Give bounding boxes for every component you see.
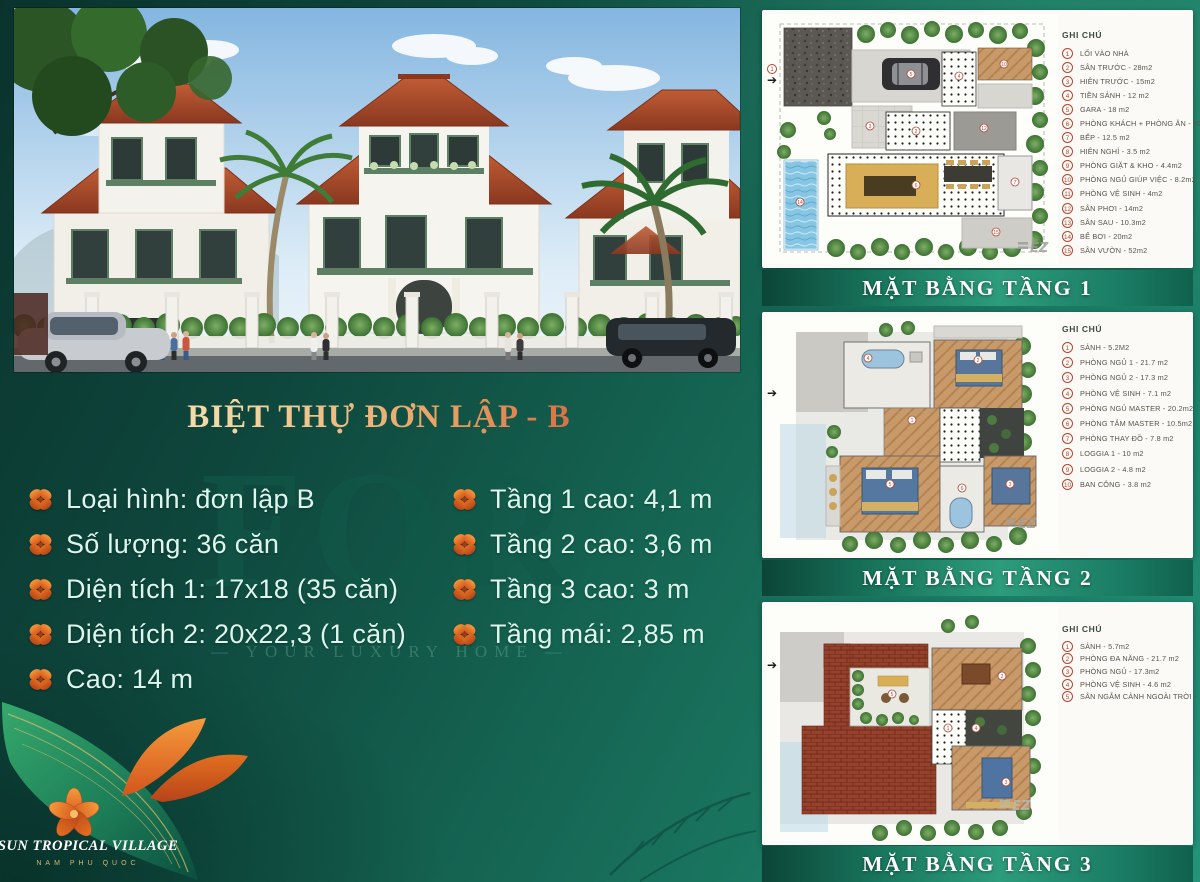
svg-text:EZ: EZ — [1030, 241, 1049, 256]
spec-item: Cao: 14 m — [28, 657, 406, 702]
flower-bullet-icon — [452, 622, 477, 647]
svg-text:5: 5 — [891, 692, 894, 698]
flower-bullet-icon — [28, 622, 53, 647]
spec-item: Diện tích 1: 17x18 (35 căn) — [28, 567, 406, 612]
legend-item: 3 PHÒNG NGỦ 2 - 17.3 m2 — [1062, 370, 1187, 385]
flower-bullet-icon — [28, 487, 53, 512]
legend-label: GARA - 18 m2 — [1080, 105, 1129, 114]
legend-number-badge: 10 — [1062, 174, 1073, 185]
svg-text:3: 3 — [1005, 780, 1008, 786]
poster-page: FOR — YOUR LUXURY HOME — BIỆT THỰ ĐƠN LẬ… — [0, 0, 1200, 882]
svg-text:5: 5 — [889, 482, 892, 488]
svg-text:6: 6 — [961, 486, 964, 492]
legend-label: PHÒNG VỆ SINH - 4m2 — [1080, 189, 1162, 198]
legend-item: 8 HIÊN NGHỈ - 3.5 m2 — [1062, 145, 1187, 159]
spec-item: Tầng 1 cao: 4,1 m — [452, 477, 713, 522]
spec-label: Diện tích 2: 20x22,3 (1 căn) — [66, 619, 406, 650]
legend-label: BỂ BƠI - 20m2 — [1080, 232, 1132, 241]
floor-plan-card-3: 1 2 3 4 5 EZ ➔ GHI CHÚ 1 SẢNH - 5.7m2 — [762, 602, 1193, 845]
legend-number-badge: 9 — [1062, 160, 1073, 171]
spec-list-left: Loại hình: đơn lập B Số lượng: 36 căn Di… — [28, 477, 406, 702]
spec-label: Cao: 14 m — [66, 664, 193, 695]
flower-bullet-icon — [452, 532, 477, 557]
legend-number-badge: 5 — [1062, 691, 1073, 702]
legend-label: TIỀN SẢNH - 12 m2 — [1080, 91, 1149, 100]
caption-tang-3: MẶT BẰNG TẦNG 3 — [762, 846, 1193, 882]
legend-number-badge: 2 — [1062, 653, 1073, 664]
palm-frond-decoration — [600, 745, 758, 882]
legend-item: 2 SÂN TRƯỚC - 28m2 — [1062, 60, 1187, 74]
villa-photo — [14, 8, 740, 372]
caption-tang-2: MẶT BẰNG TẦNG 2 — [762, 560, 1193, 596]
legend-number-badge: 11 — [1062, 188, 1073, 199]
legend-label: LOGGIA 1 - 10 m2 — [1080, 449, 1144, 458]
legend-label: HIÊN TRƯỚC - 15m2 — [1080, 77, 1155, 86]
svg-text:4: 4 — [975, 726, 978, 732]
legend-number-badge: 2 — [1062, 357, 1073, 368]
north-arrow-icon: ➔ — [767, 75, 777, 85]
legend-number-badge: 5 — [1062, 104, 1073, 115]
legend-label: PHÒNG NGỦ 2 - 17.3 m2 — [1080, 373, 1168, 382]
legend-item: 4 PHÒNG VỆ SINH - 4.6 m2 — [1062, 678, 1187, 691]
logo-name: SUN TROPICAL VILLAGE — [0, 838, 178, 854]
spec-item: Diện tích 2: 20x22,3 (1 căn) — [28, 612, 406, 657]
spec-item: Tầng 2 cao: 3,6 m — [452, 522, 713, 567]
legend-number-badge: 5 — [1062, 403, 1073, 414]
floor-plan-card-1: 2 3 4 5 6 7 10 12 14 15 EZ 1 ➔ GHI CHÚ — [762, 10, 1193, 268]
legend-item: 10 BAN CÔNG - 3.8 m2 — [1062, 477, 1187, 492]
floor-plan-card-2: 1 2 3 4 5 6 EZ ➔ GHI CHÚ 1 SẢNH — [762, 312, 1193, 558]
legend-number-badge: 8 — [1062, 146, 1073, 157]
svg-text:2: 2 — [915, 129, 918, 135]
legend-number-badge: 8 — [1062, 448, 1073, 459]
legend-number-badge: 4 — [1062, 388, 1073, 399]
legend-number-badge: 12 — [1062, 203, 1073, 214]
legend-number-badge: 3 — [1062, 76, 1073, 87]
legend-item: 5 PHÒNG NGỦ MASTER - 20.2m2 — [1062, 401, 1187, 416]
legend-number-badge: 7 — [1062, 433, 1073, 444]
north-arrow-icon: ➔ — [767, 660, 777, 670]
legend-floor-2: GHI CHÚ 1 SẢNH - 5.2M2 2 PHÒNG NGỦ 1 - 2… — [1062, 312, 1187, 558]
spec-item: Số lượng: 36 căn — [28, 522, 406, 567]
legend-list: 1 LỐI VÀO NHÀ 2 SÂN TRƯỚC - 28m2 3 HIÊN … — [1062, 46, 1187, 257]
legend-label: HIÊN NGHỈ - 3.5 m2 — [1080, 147, 1150, 156]
legend-label: SÂN SAU - 10.3m2 — [1080, 218, 1146, 227]
entrance-marker: 1 ➔ — [767, 64, 777, 85]
flower-bullet-icon — [452, 577, 477, 602]
spec-item: Loại hình: đơn lập B — [28, 477, 406, 522]
legend-label: PHÒNG THAY ĐỒ - 7.8 m2 — [1080, 434, 1174, 443]
legend-label: PHÒNG TẮM MASTER - 10.5m2 — [1080, 419, 1192, 428]
legend-label: SẢNH - 5.7m2 — [1080, 642, 1129, 651]
legend-item: 6 PHÒNG TẮM MASTER - 10.5m2 — [1062, 416, 1187, 431]
legend-number-badge: 1 — [1062, 342, 1073, 353]
legend-number-badge: 3 — [1062, 372, 1073, 383]
floor-plan-graphic-2: 1 2 3 4 5 6 EZ — [766, 316, 1058, 554]
flower-bullet-icon — [28, 667, 53, 692]
svg-text:15: 15 — [993, 230, 999, 236]
legend-number-badge: 3 — [1062, 666, 1073, 677]
legend-item: 5 SÂN NGẮM CẢNH NGOÀI TRỜI - 17.3m2 — [1062, 690, 1187, 703]
legend-label: PHÒNG NGỦ 1 - 21.7 m2 — [1080, 358, 1168, 367]
svg-text:EZ: EZ — [1012, 799, 1031, 814]
legend-label: SÂN VƯỜN - 52m2 — [1080, 246, 1147, 255]
flower-bullet-icon — [452, 487, 477, 512]
entrance-marker: ➔ — [767, 388, 777, 398]
legend-label: SẢNH - 5.2M2 — [1080, 343, 1129, 352]
spec-label: Diện tích 1: 17x18 (35 căn) — [66, 574, 398, 605]
legend-number-badge: 4 — [1062, 90, 1073, 101]
svg-text:2: 2 — [977, 358, 980, 364]
entrance-marker: ➔ — [767, 660, 777, 670]
legend-number-badge: 15 — [1062, 245, 1073, 256]
spec-list-right: Tầng 1 cao: 4,1 m Tầng 2 cao: 3,6 m Tầng… — [452, 477, 713, 657]
legend-title: GHI CHÚ — [1062, 324, 1187, 334]
villa-render-scene — [14, 8, 740, 372]
legend-label: PHÒNG NGỦ - 17.3m2 — [1080, 667, 1159, 676]
legend-label: SÂN TRƯỚC - 28m2 — [1080, 63, 1152, 72]
svg-text:10: 10 — [1001, 62, 1007, 68]
legend-title: GHI CHÚ — [1062, 624, 1187, 634]
legend-number-badge: 13 — [1062, 217, 1073, 228]
svg-text:14: 14 — [797, 200, 803, 206]
legend-floor-1: GHI CHÚ 1 LỐI VÀO NHÀ 2 SÂN TRƯỚC - 28m2… — [1062, 10, 1187, 268]
legend-label: PHÒNG VỆ SINH - 4.6 m2 — [1080, 680, 1171, 689]
legend-item: 9 PHÒNG GIẶT & KHO - 4.4m2 — [1062, 159, 1187, 173]
legend-floor-3: GHI CHÚ 1 SẢNH - 5.7m2 2 PHÒNG ĐA NĂNG -… — [1062, 602, 1187, 845]
legend-item: 1 SẢNH - 5.2M2 — [1062, 340, 1187, 355]
legend-item: 10 PHÒNG NGỦ GIÚP VIỆC - 8.2m2 — [1062, 173, 1187, 187]
spec-item: Tầng 3 cao: 3 m — [452, 567, 713, 612]
legend-label: LOGGIA 2 - 4.8 m2 — [1080, 465, 1146, 474]
legend-item: 5 GARA - 18 m2 — [1062, 102, 1187, 116]
svg-text:3: 3 — [869, 124, 872, 130]
legend-number-badge: 14 — [1062, 231, 1073, 242]
legend-number-badge: 2 — [1062, 62, 1073, 73]
legend-item: 11 PHÒNG VỆ SINH - 4m2 — [1062, 187, 1187, 201]
legend-number-badge: 7 — [1062, 132, 1073, 143]
legend-number-badge: 6 — [1062, 118, 1073, 129]
floor-plan-graphic-1: 2 3 4 5 6 7 10 12 14 15 EZ — [766, 14, 1058, 264]
spec-label: Tầng 2 cao: 3,6 m — [490, 529, 713, 560]
legend-item: 4 TIỀN SẢNH - 12 m2 — [1062, 88, 1187, 102]
svg-text:1: 1 — [947, 726, 950, 732]
legend-number-badge: 10 — [1062, 479, 1073, 490]
legend-label: PHÒNG ĐA NĂNG - 21.7 m2 — [1080, 654, 1179, 663]
legend-label: PHÒNG GIẶT & KHO - 4.4m2 — [1080, 161, 1182, 170]
legend-label: BAN CÔNG - 3.8 m2 — [1080, 480, 1151, 489]
legend-item: 7 BẾP - 12.5 m2 — [1062, 131, 1187, 145]
legend-label: PHÒNG KHÁCH + PHÒNG ĂN - 40 m2 — [1080, 119, 1200, 128]
svg-text:1: 1 — [911, 418, 914, 424]
legend-label: PHÒNG VỆ SINH - 7.1 m2 — [1080, 389, 1171, 398]
legend-item: 12 SÂN PHƠI - 14m2 — [1062, 201, 1187, 215]
legend-number-badge: 9 — [1062, 464, 1073, 475]
legend-item: 3 PHÒNG NGỦ - 17.3m2 — [1062, 665, 1187, 678]
legend-item: 4 PHÒNG VỆ SINH - 7.1 m2 — [1062, 386, 1187, 401]
legend-item: 2 PHÒNG ĐA NĂNG - 21.7 m2 — [1062, 653, 1187, 666]
spec-label: Loại hình: đơn lập B — [66, 484, 315, 515]
flower-bullet-icon — [28, 577, 53, 602]
north-arrow-icon: ➔ — [767, 388, 777, 398]
svg-text:5: 5 — [910, 72, 913, 78]
legend-item: 6 PHÒNG KHÁCH + PHÒNG ĂN - 40 m2 — [1062, 116, 1187, 130]
spec-label: Tầng 1 cao: 4,1 m — [490, 484, 713, 515]
sun-tropical-village-logo: SUN TROPICAL VILLAGE NAM PHU QUOC — [0, 698, 258, 882]
spec-label: Tầng 3 cao: 3 m — [490, 574, 690, 605]
legend-item: 3 HIÊN TRƯỚC - 15m2 — [1062, 74, 1187, 88]
legend-item: 13 SÂN SAU - 10.3m2 — [1062, 215, 1187, 229]
legend-item: 9 LOGGIA 2 - 4.8 m2 — [1062, 462, 1187, 477]
legend-number-badge: 4 — [1062, 679, 1073, 690]
legend-item: 8 LOGGIA 1 - 10 m2 — [1062, 446, 1187, 461]
legend-number-badge: 1 — [1062, 641, 1073, 652]
flower-bullet-icon — [28, 532, 53, 557]
legend-label: SÂN PHƠI - 14m2 — [1080, 204, 1143, 213]
legend-list: 1 SẢNH - 5.7m2 2 PHÒNG ĐA NĂNG - 21.7 m2… — [1062, 640, 1187, 703]
page-title: BIỆT THỰ ĐƠN LẬP - B — [0, 399, 758, 436]
spec-label: Số lượng: 36 căn — [66, 529, 279, 560]
logo: SUN TROPICAL VILLAGE NAM PHU QUOC — [0, 698, 258, 882]
legend-label: BẾP - 12.5 m2 — [1080, 133, 1130, 142]
legend-list: 1 SẢNH - 5.2M2 2 PHÒNG NGỦ 1 - 21.7 m2 3… — [1062, 340, 1187, 492]
logo-subtitle: NAM PHU QUOC — [36, 860, 139, 867]
legend-label: PHÒNG NGỦ GIÚP VIỆC - 8.2m2 — [1080, 175, 1196, 184]
svg-text:7: 7 — [1014, 180, 1017, 186]
spec-item: Tầng mái: 2,85 m — [452, 612, 713, 657]
legend-label: LỐI VÀO NHÀ — [1080, 49, 1129, 58]
legend-item: 14 BỂ BƠI - 20m2 — [1062, 229, 1187, 243]
floor-plan-graphic-3: 1 2 3 4 5 EZ — [766, 606, 1058, 841]
spec-label: Tầng mái: 2,85 m — [490, 619, 705, 650]
legend-label: PHÒNG NGỦ MASTER - 20.2m2 — [1080, 404, 1193, 413]
svg-text:4: 4 — [867, 356, 870, 362]
svg-text:3: 3 — [1009, 482, 1012, 488]
legend-number-badge: 1 — [1062, 48, 1073, 59]
svg-text:2: 2 — [1001, 674, 1004, 680]
legend-item: 15 SÂN VƯỜN - 52m2 — [1062, 243, 1187, 257]
svg-text:6: 6 — [915, 183, 918, 189]
legend-number-badge: 6 — [1062, 418, 1073, 429]
legend-title: GHI CHÚ — [1062, 30, 1187, 40]
legend-item: 1 SẢNH - 5.7m2 — [1062, 640, 1187, 653]
legend-item: 7 PHÒNG THAY ĐỒ - 7.8 m2 — [1062, 431, 1187, 446]
svg-text:4: 4 — [958, 74, 961, 80]
legend-label: SÂN NGẮM CẢNH NGOÀI TRỜI - 17.3m2 — [1080, 692, 1200, 701]
legend-item: 1 LỐI VÀO NHÀ — [1062, 46, 1187, 60]
caption-tang-1: MẶT BẰNG TẦNG 1 — [762, 270, 1193, 306]
legend-item: 2 PHÒNG NGỦ 1 - 21.7 m2 — [1062, 355, 1187, 370]
svg-text:12: 12 — [981, 126, 987, 132]
svg-text:EZ: EZ — [1018, 517, 1037, 532]
